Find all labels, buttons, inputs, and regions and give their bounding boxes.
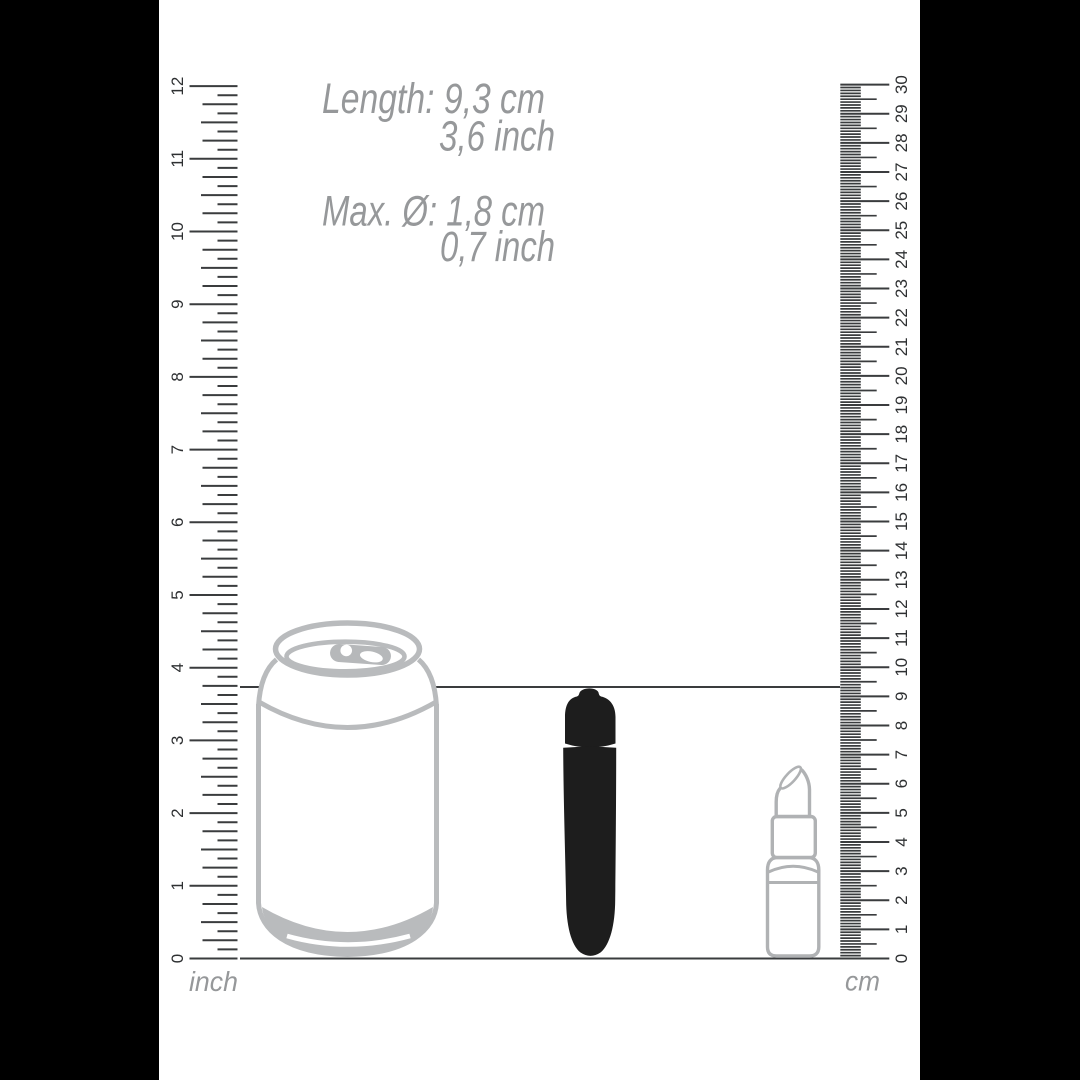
svg-text:4: 4 (892, 837, 911, 846)
svg-text:7: 7 (168, 445, 187, 454)
svg-text:23: 23 (892, 279, 911, 298)
svg-text:9: 9 (892, 692, 911, 701)
svg-text:18: 18 (892, 425, 911, 444)
svg-text:2: 2 (168, 808, 187, 817)
svg-text:6: 6 (168, 518, 187, 527)
svg-text:1: 1 (892, 925, 911, 934)
svg-text:8: 8 (892, 721, 911, 730)
svg-text:9: 9 (168, 299, 187, 308)
svg-text:30: 30 (892, 75, 911, 94)
svg-text:12: 12 (892, 599, 911, 618)
svg-text:0,7 inch: 0,7 inch (440, 224, 555, 271)
svg-text:4: 4 (168, 663, 187, 672)
svg-text:2: 2 (892, 895, 911, 904)
svg-text:11: 11 (168, 150, 187, 168)
svg-text:25: 25 (892, 221, 911, 240)
svg-text:29: 29 (892, 104, 911, 123)
svg-text:28: 28 (892, 133, 911, 152)
svg-text:12: 12 (168, 77, 187, 96)
svg-text:0: 0 (892, 954, 911, 963)
svg-text:20: 20 (892, 366, 911, 385)
svg-text:5: 5 (892, 808, 911, 817)
svg-text:3: 3 (892, 866, 911, 875)
svg-text:10: 10 (168, 222, 187, 241)
svg-text:27: 27 (892, 163, 911, 182)
svg-text:15: 15 (892, 512, 911, 531)
svg-text:11: 11 (892, 629, 911, 647)
svg-text:6: 6 (892, 779, 911, 788)
svg-text:13: 13 (892, 570, 911, 589)
svg-text:17: 17 (892, 454, 911, 473)
svg-text:22: 22 (892, 308, 911, 327)
svg-text:8: 8 (168, 372, 187, 381)
svg-text:inch: inch (189, 966, 238, 997)
svg-text:5: 5 (168, 590, 187, 599)
svg-text:7: 7 (892, 750, 911, 759)
svg-text:10: 10 (892, 658, 911, 677)
svg-text:3,6 inch: 3,6 inch (439, 114, 555, 161)
svg-text:1: 1 (168, 881, 187, 890)
svg-text:cm: cm (845, 966, 880, 997)
svg-text:3: 3 (168, 736, 187, 745)
svg-text:14: 14 (892, 541, 911, 560)
svg-text:21: 21 (892, 337, 911, 356)
svg-text:0: 0 (168, 954, 187, 963)
svg-text:26: 26 (892, 192, 911, 211)
svg-text:19: 19 (892, 396, 911, 415)
svg-text:24: 24 (892, 250, 911, 269)
svg-text:16: 16 (892, 483, 911, 502)
